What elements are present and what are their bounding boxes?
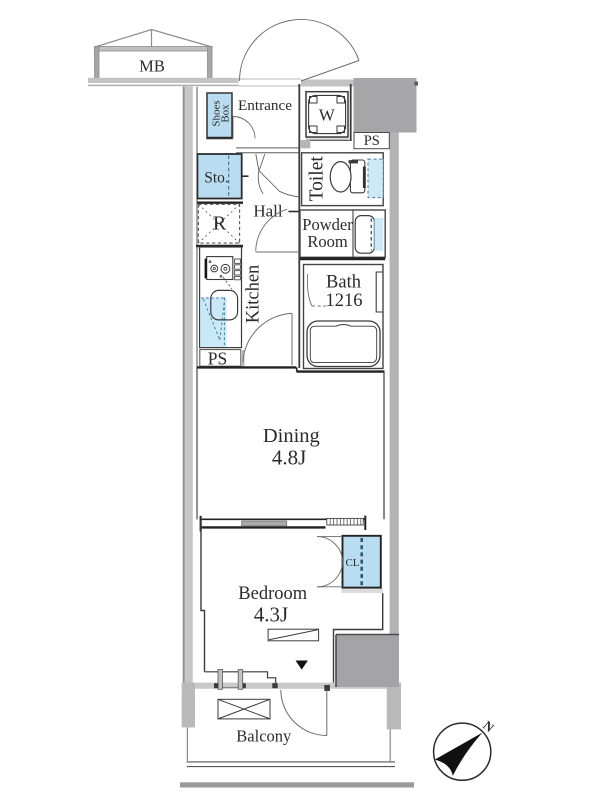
svg-text:Room: Room [307,232,348,251]
svg-text:Bath: Bath [326,273,361,293]
svg-text:W: W [319,106,336,125]
svg-text:Dining: Dining [263,425,320,447]
svg-text:4.8J: 4.8J [272,446,306,470]
svg-text:Kitchen: Kitchen [243,265,263,324]
svg-text:PS: PS [364,133,380,149]
svg-text:Balcony: Balcony [236,727,292,746]
svg-text:Box: Box [220,104,232,123]
svg-text:R: R [213,213,227,235]
svg-text:MB: MB [139,57,165,76]
svg-text:Hall: Hall [253,202,283,221]
svg-text:Entrance: Entrance [238,97,292,114]
svg-text:4.3J: 4.3J [254,603,288,627]
svg-text:Bedroom: Bedroom [238,584,307,604]
svg-text:Sto.: Sto. [204,170,229,187]
svg-text:1216: 1216 [326,291,363,311]
svg-text:Toilet: Toilet [306,156,327,202]
svg-text:PS: PS [208,349,227,369]
svg-text:CL: CL [345,557,359,569]
